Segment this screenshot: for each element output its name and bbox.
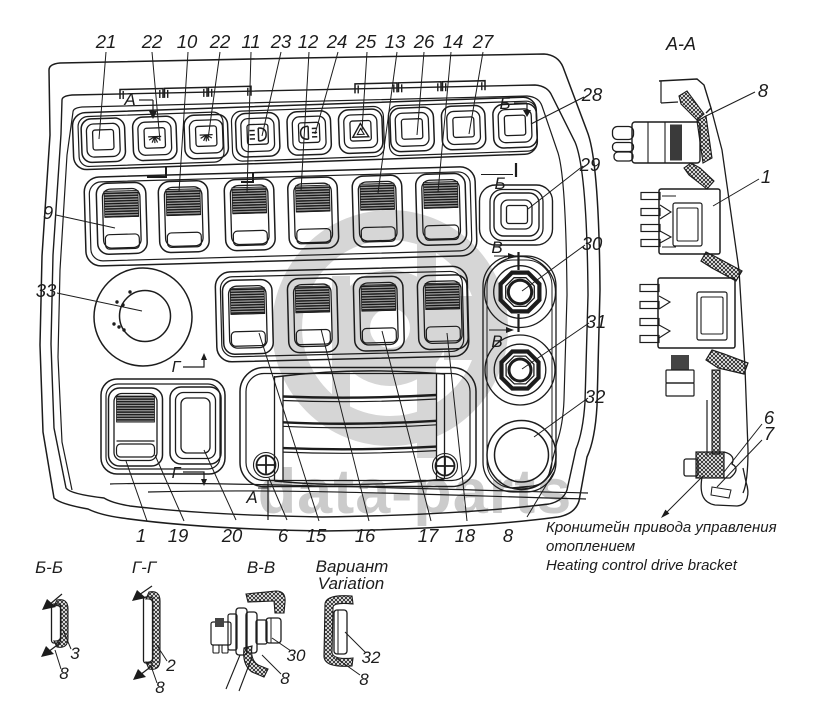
svg-text:Г: Г [172,359,182,376]
svg-text:29: 29 [579,154,601,175]
svg-text:15: 15 [306,525,327,546]
svg-text:21: 21 [95,31,117,52]
svg-text:20: 20 [221,525,243,546]
svg-text:9: 9 [43,202,53,223]
svg-text:Variation: Variation [318,574,384,593]
svg-text:14: 14 [443,31,464,52]
svg-text:В: В [491,238,502,257]
svg-text:13: 13 [385,31,406,52]
svg-text:1: 1 [136,525,146,546]
svg-text:8: 8 [155,678,165,697]
svg-text:19: 19 [168,525,189,546]
svg-text:32: 32 [362,648,381,667]
svg-text:18: 18 [455,525,476,546]
svg-text:23: 23 [270,31,292,52]
svg-text:В-В: В-В [247,558,275,577]
svg-text:А: А [123,90,135,109]
svg-text:8: 8 [280,669,290,688]
svg-text:11: 11 [241,31,260,52]
svg-text:30: 30 [582,233,603,254]
svg-text:3: 3 [70,644,80,663]
svg-text:28: 28 [581,84,603,105]
svg-text:Heating control drive bracket: Heating control drive bracket [546,557,738,574]
svg-text:2: 2 [165,656,176,675]
svg-text:27: 27 [472,31,494,52]
svg-text:22: 22 [209,31,231,52]
svg-text:7: 7 [764,423,775,444]
svg-text:В: В [491,332,502,351]
svg-text:12: 12 [298,31,319,52]
svg-text:отоплением: отоплением [546,538,635,555]
svg-text:Г-Г: Г-Г [132,558,158,577]
svg-text:Б: Б [494,174,505,193]
svg-text:33: 33 [36,280,57,301]
svg-text:22: 22 [141,31,163,52]
svg-text:8: 8 [59,664,69,683]
svg-text:32: 32 [585,386,606,407]
svg-text:Б: Б [499,94,510,113]
svg-text:Кронштейн привода управления: Кронштейн привода управления [546,519,777,536]
svg-text:30: 30 [287,646,306,665]
svg-text:16: 16 [355,525,376,546]
svg-text:Б-Б: Б-Б [35,558,63,577]
svg-text:8: 8 [503,525,514,546]
svg-text:10: 10 [177,31,198,52]
svg-text:24: 24 [326,31,348,52]
svg-text:6: 6 [278,525,289,546]
svg-text:8: 8 [758,80,769,101]
svg-text:26: 26 [413,31,435,52]
svg-text:25: 25 [355,31,377,52]
svg-text:8: 8 [359,670,369,689]
svg-text:Г: Г [172,465,182,482]
svg-text:17: 17 [418,525,439,546]
svg-text:А-А: А-А [665,34,696,54]
svg-text:А: А [245,488,257,507]
svg-text:1: 1 [761,166,771,187]
svg-text:31: 31 [586,311,607,332]
